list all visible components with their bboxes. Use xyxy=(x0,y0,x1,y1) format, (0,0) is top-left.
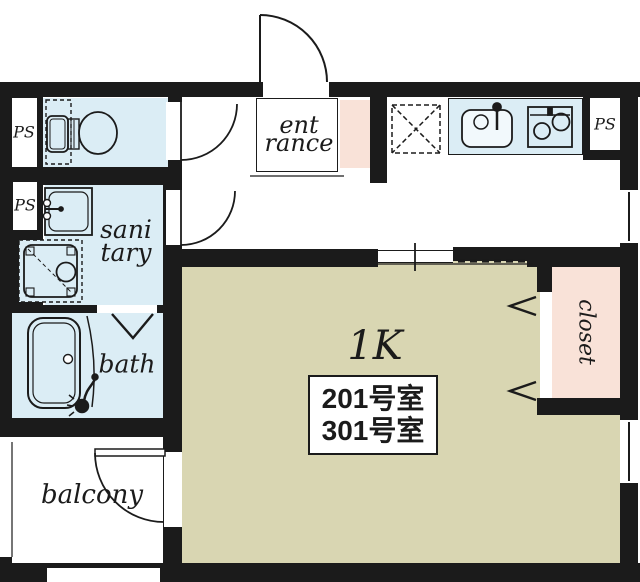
closet-label: closet xyxy=(574,299,599,365)
window xyxy=(620,190,638,243)
room-toilet xyxy=(43,98,168,167)
sanitary-label: sani tary xyxy=(100,218,152,264)
refrigerator-space-icon xyxy=(392,105,440,153)
bath-label: bath xyxy=(98,350,155,379)
balcony-label: balcony xyxy=(41,480,143,510)
pipe-space-label: PS xyxy=(13,123,35,142)
entrance-door-opening xyxy=(262,82,330,97)
balcony-railing-gap xyxy=(47,568,160,582)
sanitary-door-opening xyxy=(166,190,183,245)
kitchen-counter xyxy=(448,98,583,155)
wall-segment xyxy=(0,313,12,419)
room-number-line: 201号室 xyxy=(322,383,425,415)
bath-door-opening xyxy=(97,305,157,313)
entrance-door-swing xyxy=(260,15,327,83)
toilet-door-opening xyxy=(166,102,183,160)
entrance-label: ent rance xyxy=(265,116,334,152)
pipe-space-label: PS xyxy=(594,115,616,134)
wall-segment xyxy=(620,82,638,582)
unit-type-label: 1K xyxy=(347,323,402,369)
window xyxy=(620,420,638,483)
wall-segment xyxy=(181,249,378,267)
room-number-line: 301号室 xyxy=(322,415,425,447)
washing-machine-space xyxy=(19,240,82,302)
floor-plan: PS PS PS ent rance sani tary bath balcon… xyxy=(0,0,640,582)
wall-segment xyxy=(370,93,387,183)
wall-segment xyxy=(537,262,552,292)
balcony-railing-gap xyxy=(0,442,12,557)
toilet-door-swing xyxy=(181,102,237,160)
room-number-box: 201号室 301号室 xyxy=(308,375,438,455)
closet-door-opening xyxy=(540,292,552,398)
wall-segment xyxy=(0,418,182,437)
balcony-door-opening xyxy=(164,452,182,527)
pipe-space-label: PS xyxy=(14,196,36,215)
sliding-door-panel xyxy=(378,250,453,263)
sanitary-door-swing xyxy=(181,190,235,245)
entrance-shoe-cabinet xyxy=(340,100,370,168)
wall-segment xyxy=(537,398,638,415)
